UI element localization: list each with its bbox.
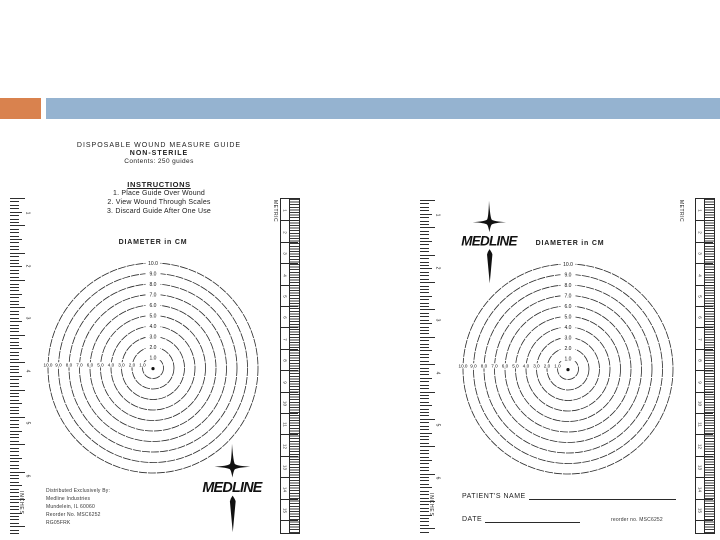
ruler-tick bbox=[420, 463, 429, 464]
distributor-line: Mundelein, IL 60060 bbox=[46, 503, 110, 511]
axis-label: 4.0 bbox=[523, 364, 530, 369]
ruler-tick bbox=[10, 530, 19, 531]
cm-tick bbox=[281, 349, 298, 350]
ruler-tick bbox=[420, 443, 429, 444]
ruler-tick bbox=[10, 393, 19, 394]
ruler-tick bbox=[10, 482, 19, 483]
inch-number: 1 bbox=[24, 212, 30, 215]
cm-tick bbox=[281, 306, 298, 307]
distributor-line: Medline Industries bbox=[46, 495, 110, 503]
ruler-tick bbox=[420, 415, 429, 416]
presentation-slide: DISPOSABLE WOUND MEASURE GUIDE NON-STERI… bbox=[0, 0, 720, 540]
ruler-tick bbox=[420, 388, 429, 389]
ruler-tick bbox=[10, 526, 25, 527]
ruler-tick bbox=[420, 378, 432, 379]
ruler-tick bbox=[10, 417, 25, 418]
ruler-tick bbox=[420, 357, 429, 358]
axis-label: 2.0 bbox=[129, 363, 136, 368]
axis-label: 8.0 bbox=[66, 363, 73, 368]
axis-label: 6.0 bbox=[502, 364, 509, 369]
ruler-tick bbox=[10, 280, 25, 281]
cm-number: 8 bbox=[283, 357, 288, 365]
inch-number: 4 bbox=[24, 369, 30, 372]
ruler-tick bbox=[10, 249, 19, 250]
ruler-tick bbox=[420, 217, 429, 218]
ruler-tick bbox=[420, 392, 435, 393]
instructions-heading: INSTRUCTIONS bbox=[28, 180, 290, 189]
cm-number: 5 bbox=[698, 293, 703, 301]
ruler-tick bbox=[420, 258, 429, 259]
ruler-tick bbox=[10, 492, 19, 493]
cm-tick bbox=[281, 499, 298, 500]
ruler-tick bbox=[420, 429, 429, 430]
inches-ruler-label: INCHES bbox=[428, 493, 434, 517]
ruler-tick bbox=[10, 379, 19, 380]
ring-label: 2.0 bbox=[150, 345, 157, 351]
ruler-tick bbox=[10, 396, 19, 397]
ruler-tick bbox=[10, 304, 19, 305]
ring-label: 10.0 bbox=[148, 261, 158, 267]
ruler-tick bbox=[10, 215, 19, 216]
cm-number: 15 bbox=[698, 507, 703, 515]
ruler-tick bbox=[420, 457, 429, 458]
ruler-tick bbox=[10, 270, 19, 271]
ruler-tick bbox=[10, 321, 22, 322]
inches-ruler: INCHES 123456 bbox=[420, 200, 446, 535]
inch-number: 3 bbox=[434, 319, 440, 322]
ruler-tick bbox=[10, 229, 19, 230]
ruler-tick bbox=[10, 427, 19, 428]
ruler-tick bbox=[10, 342, 19, 343]
ruler-tick bbox=[10, 369, 19, 370]
ruler-tick bbox=[420, 467, 429, 468]
cm-number: 4 bbox=[283, 271, 288, 279]
cm-tick bbox=[696, 349, 713, 350]
cm-number: 1 bbox=[283, 207, 288, 215]
ruler-tick bbox=[420, 265, 429, 266]
ruler-tick bbox=[420, 412, 429, 413]
distributor-info: Distributed Exclusively By: Medline Indu… bbox=[46, 487, 110, 527]
ruler-tick bbox=[420, 323, 432, 324]
ruler-tick bbox=[420, 477, 429, 478]
ruler-tick bbox=[420, 371, 429, 372]
ruler-tick bbox=[10, 383, 19, 384]
inch-number: 2 bbox=[24, 264, 30, 267]
ruler-tick bbox=[420, 210, 429, 211]
ruler-tick bbox=[420, 426, 429, 427]
ruler-tick bbox=[420, 347, 429, 348]
inch-number: 1 bbox=[434, 214, 440, 217]
axis-label: 6.0 bbox=[87, 363, 94, 368]
ruler-tick bbox=[420, 470, 429, 471]
ruler-tick bbox=[10, 455, 19, 456]
ruler-tick bbox=[10, 294, 22, 295]
cm-tick bbox=[281, 285, 298, 286]
ruler-tick bbox=[10, 232, 19, 233]
ruler-tick bbox=[420, 474, 435, 475]
ruler-tick bbox=[420, 521, 429, 522]
ruler-tick bbox=[10, 376, 22, 377]
ruler-tick bbox=[10, 301, 19, 302]
ruler-tick bbox=[420, 436, 429, 437]
ring-label: 8.0 bbox=[565, 283, 572, 289]
ring-label: 1.0 bbox=[565, 356, 572, 362]
wound-guide-back: INCHES 123456 MEDLINE DIAMETER in CM 10.… bbox=[418, 196, 718, 538]
ruler-tick bbox=[420, 494, 429, 495]
ruler-tick bbox=[10, 284, 19, 285]
ruler-tick bbox=[10, 201, 19, 202]
ruler-tick bbox=[10, 448, 19, 449]
ruler-tick bbox=[10, 328, 19, 329]
ruler-tick bbox=[10, 205, 19, 206]
ruler-tick bbox=[10, 413, 19, 414]
ruler-tick bbox=[420, 320, 429, 321]
cm-number: 4 bbox=[698, 271, 703, 279]
ruler-tick bbox=[420, 487, 432, 488]
ruler-tick bbox=[420, 275, 429, 276]
cm-number: 7 bbox=[283, 335, 288, 343]
ring-label: 6.0 bbox=[150, 303, 157, 309]
ruler-tick bbox=[420, 200, 435, 201]
metric-ruler: 123456789101112131415 bbox=[280, 198, 300, 534]
instruction-step-2: 2. View Wound Through Scales bbox=[28, 198, 290, 207]
cm-number: 3 bbox=[283, 250, 288, 258]
ruler-tick bbox=[10, 263, 19, 264]
ruler-tick bbox=[10, 403, 22, 404]
ruler-tick bbox=[420, 518, 429, 519]
ruler-tick bbox=[10, 198, 25, 199]
ruler-tick bbox=[420, 364, 435, 365]
cm-tick bbox=[281, 434, 298, 435]
distributor-line: RG05FRK bbox=[46, 519, 110, 527]
ruler-tick bbox=[10, 331, 19, 332]
ruler-tick bbox=[10, 345, 19, 346]
cm-number: 7 bbox=[698, 335, 703, 343]
ruler-tick bbox=[420, 224, 429, 225]
cm-tick bbox=[696, 499, 713, 500]
ruler-tick bbox=[10, 287, 19, 288]
distributor-line: Reorder No. MSC6252 bbox=[46, 511, 110, 519]
ruler-tick bbox=[10, 212, 22, 213]
cm-number: 9 bbox=[283, 378, 288, 386]
ring-label: 9.0 bbox=[565, 272, 572, 278]
medline-logo: MEDLINE bbox=[186, 440, 278, 536]
ring-label: 4.0 bbox=[565, 325, 572, 331]
cm-number: 5 bbox=[283, 293, 288, 301]
ruler-tick bbox=[420, 398, 429, 399]
cm-number: 11 bbox=[283, 421, 288, 429]
ruler-tick bbox=[420, 306, 429, 307]
ruler-tick bbox=[420, 515, 432, 516]
logo-star-tail-icon bbox=[230, 496, 236, 532]
ruler-tick bbox=[420, 528, 435, 529]
ruler-tick bbox=[10, 499, 25, 500]
cm-tick bbox=[281, 327, 298, 328]
ruler-tick bbox=[10, 441, 19, 442]
ruler-tick bbox=[420, 316, 429, 317]
inch-number: 4 bbox=[434, 371, 440, 374]
patient-name-field: PATIENT'S NAME bbox=[462, 491, 676, 500]
ruler-tick bbox=[10, 509, 19, 510]
ruler-tick bbox=[420, 248, 429, 249]
cm-number: 8 bbox=[698, 357, 703, 365]
ruler-tick bbox=[420, 303, 429, 304]
ruler-tick bbox=[420, 374, 429, 375]
cm-tick bbox=[281, 392, 298, 393]
ruler-tick bbox=[10, 372, 19, 373]
ruler-tick bbox=[420, 484, 429, 485]
cm-number: 12 bbox=[698, 442, 703, 450]
ruler-tick bbox=[10, 325, 19, 326]
axis-label: 2.0 bbox=[544, 364, 551, 369]
ruler-tick bbox=[10, 208, 19, 209]
axis-label: 10.0 bbox=[44, 363, 53, 368]
cm-number: 15 bbox=[283, 507, 288, 515]
axis-label: 9.0 bbox=[470, 364, 477, 369]
ruler-tick bbox=[10, 485, 22, 486]
ruler-tick bbox=[10, 355, 19, 356]
ruler-tick bbox=[420, 453, 429, 454]
ruler-tick bbox=[420, 214, 432, 215]
ruler-tick bbox=[10, 260, 19, 261]
ruler-tick bbox=[420, 221, 429, 222]
ruler-tick bbox=[420, 450, 429, 451]
cm-tick bbox=[696, 327, 713, 328]
cm-number: 13 bbox=[698, 464, 703, 472]
date-label: DATE bbox=[462, 516, 482, 523]
metric-ruler-label: METRIC bbox=[678, 200, 684, 222]
ruler-tick bbox=[420, 405, 432, 406]
ruler-tick bbox=[420, 409, 429, 410]
cm-tick bbox=[696, 263, 713, 264]
cm-tick bbox=[281, 220, 298, 221]
ruler-tick bbox=[10, 246, 19, 247]
ruler-tick bbox=[10, 461, 19, 462]
accent-bar-blue bbox=[46, 98, 720, 119]
ring-label: 7.0 bbox=[565, 293, 572, 299]
ruler-tick bbox=[420, 337, 435, 338]
ruler-tick bbox=[10, 451, 19, 452]
ruler-tick bbox=[10, 390, 25, 391]
instruction-step-3: 3. Discard Guide After One Use bbox=[28, 207, 290, 216]
ruler-tick bbox=[10, 348, 22, 349]
ruler-tick bbox=[10, 277, 19, 278]
cm-tick bbox=[696, 392, 713, 393]
inch-number: 5 bbox=[24, 422, 30, 425]
cm-tick bbox=[696, 220, 713, 221]
ruler-tick bbox=[420, 234, 429, 235]
ruler-tick bbox=[420, 395, 429, 396]
metric-ruler: 123456789101112131415 bbox=[695, 198, 715, 534]
ruler-tick bbox=[420, 251, 429, 252]
diameter-diagram-title: DIAMETER in CM bbox=[73, 239, 233, 246]
ruler-tick bbox=[10, 444, 25, 445]
ruler-tick bbox=[10, 386, 19, 387]
ruler-tick bbox=[10, 256, 19, 257]
ruler-tick bbox=[420, 299, 429, 300]
ruler-tick bbox=[420, 385, 429, 386]
ruler-tick bbox=[420, 333, 429, 334]
ruler-tick bbox=[420, 511, 429, 512]
ruler-tick bbox=[10, 290, 19, 291]
ring-label: 3.0 bbox=[150, 334, 157, 340]
patient-name-blank bbox=[529, 491, 676, 500]
ruler-tick bbox=[10, 242, 19, 243]
axis-label: 8.0 bbox=[481, 364, 488, 369]
cm-number: 14 bbox=[698, 485, 703, 493]
ruler-tick bbox=[420, 340, 429, 341]
ruler-tick bbox=[420, 501, 435, 502]
inches-ruler: INCHES 123456 bbox=[10, 198, 36, 536]
metric-ruler-label: METRIC bbox=[272, 200, 278, 222]
ruler-tick bbox=[420, 327, 429, 328]
axis-label: 3.0 bbox=[533, 364, 540, 369]
ruler-tick bbox=[10, 519, 19, 520]
cm-tick bbox=[696, 370, 713, 371]
ruler-tick bbox=[420, 272, 429, 273]
logo-wordmark: MEDLINE bbox=[202, 480, 262, 496]
metric-hatch bbox=[289, 199, 299, 533]
ruler-tick bbox=[10, 458, 22, 459]
cm-tick bbox=[696, 413, 713, 414]
inch-number: 6 bbox=[434, 477, 440, 480]
ruler-tick bbox=[420, 439, 429, 440]
ring-label: 5.0 bbox=[565, 314, 572, 320]
ruler-tick bbox=[420, 255, 435, 256]
center-dot bbox=[151, 367, 154, 370]
ruler-tick bbox=[10, 489, 19, 490]
cm-number: 10 bbox=[698, 400, 703, 408]
ruler-tick bbox=[420, 381, 429, 382]
axis-label: 3.0 bbox=[118, 363, 125, 368]
ruler-tick bbox=[10, 225, 25, 226]
ruler-tick bbox=[420, 292, 429, 293]
ruler-tick bbox=[10, 431, 22, 432]
ruler-tick bbox=[420, 262, 429, 263]
ruler-tick bbox=[10, 400, 19, 401]
ruler-tick bbox=[10, 239, 22, 240]
cm-tick bbox=[696, 285, 713, 286]
ruler-tick bbox=[10, 359, 19, 360]
ruler-tick bbox=[420, 203, 429, 204]
guide-header: DISPOSABLE WOUND MEASURE GUIDE NON-STERI… bbox=[28, 142, 290, 216]
ruler-tick bbox=[420, 498, 429, 499]
ruler-tick bbox=[420, 279, 429, 280]
inch-number: 6 bbox=[24, 475, 30, 478]
inch-number: 3 bbox=[24, 317, 30, 320]
ruler-tick bbox=[10, 478, 19, 479]
guide-sterility: NON-STERILE bbox=[28, 150, 290, 158]
ruler-tick bbox=[10, 236, 19, 237]
diameter-diagram: 10.010.09.09.08.08.07.07.06.06.05.05.04.… bbox=[453, 253, 683, 483]
cm-number: 12 bbox=[283, 442, 288, 450]
cm-tick bbox=[696, 434, 713, 435]
cm-number: 2 bbox=[698, 228, 703, 236]
ruler-tick bbox=[10, 219, 19, 220]
patient-name-label: PATIENT'S NAME bbox=[462, 493, 526, 500]
cm-tick bbox=[281, 263, 298, 264]
ruler-tick bbox=[10, 318, 19, 319]
date-blank bbox=[485, 514, 580, 523]
axis-label: 5.0 bbox=[512, 364, 519, 369]
ruler-tick bbox=[10, 437, 19, 438]
ring-label: 8.0 bbox=[150, 282, 157, 288]
cm-tick bbox=[696, 520, 713, 521]
ruler-tick bbox=[420, 491, 429, 492]
ruler-tick bbox=[420, 460, 432, 461]
ruler-tick bbox=[420, 525, 429, 526]
inch-number: 5 bbox=[434, 424, 440, 427]
ruler-tick bbox=[10, 533, 19, 534]
ruler-tick bbox=[420, 419, 435, 420]
cm-tick bbox=[281, 370, 298, 371]
cm-number: 11 bbox=[698, 421, 703, 429]
cm-number: 14 bbox=[283, 485, 288, 493]
ruler-tick bbox=[10, 297, 19, 298]
ruler-tick bbox=[10, 465, 19, 466]
ruler-tick bbox=[420, 207, 429, 208]
center-dot bbox=[566, 368, 569, 371]
ruler-tick bbox=[10, 407, 19, 408]
ruler-tick bbox=[10, 362, 25, 363]
cm-tick bbox=[281, 242, 298, 243]
ruler-tick bbox=[420, 238, 429, 239]
axis-label: 1.0 bbox=[554, 364, 561, 369]
diameter-diagram-title: DIAMETER in CM bbox=[490, 240, 650, 247]
instruction-step-1: 1. Place Guide Over Wound bbox=[28, 189, 290, 198]
wound-guide-front: DISPOSABLE WOUND MEASURE GUIDE NON-STERI… bbox=[8, 138, 310, 538]
date-field: DATE bbox=[462, 514, 580, 523]
ruler-tick bbox=[10, 424, 19, 425]
accent-bar-orange bbox=[0, 98, 41, 119]
axis-label: 7.0 bbox=[76, 363, 83, 368]
cm-tick bbox=[696, 242, 713, 243]
logo-star-icon bbox=[473, 201, 506, 232]
cm-number: 1 bbox=[698, 207, 703, 215]
cm-tick bbox=[696, 456, 713, 457]
ring-label: 7.0 bbox=[150, 292, 157, 298]
logo-star-icon bbox=[215, 444, 251, 478]
ruler-tick bbox=[420, 508, 429, 509]
ruler-tick bbox=[10, 338, 19, 339]
ruler-tick bbox=[420, 241, 432, 242]
cm-tick bbox=[281, 520, 298, 521]
axis-label: 10.0 bbox=[459, 364, 468, 369]
cm-number: 2 bbox=[283, 228, 288, 236]
ruler-tick bbox=[420, 289, 429, 290]
ruler-tick bbox=[10, 410, 19, 411]
ruler-tick bbox=[420, 268, 432, 269]
inch-number: 2 bbox=[434, 266, 440, 269]
ruler-tick bbox=[420, 354, 429, 355]
ruler-tick bbox=[420, 350, 432, 351]
ruler-tick bbox=[10, 335, 25, 336]
ruler-tick bbox=[420, 422, 429, 423]
ring-label: 3.0 bbox=[565, 335, 572, 341]
ruler-tick bbox=[420, 330, 429, 331]
cm-number: 6 bbox=[283, 314, 288, 322]
ring-label: 5.0 bbox=[150, 313, 157, 319]
guide-title: DISPOSABLE WOUND MEASURE GUIDE bbox=[28, 142, 290, 150]
axis-label: 1.0 bbox=[139, 363, 146, 368]
reorder-note: reorder no. MSC6252 bbox=[611, 517, 663, 523]
ruler-tick bbox=[420, 282, 435, 283]
ruler-tick bbox=[10, 496, 19, 497]
distributor-line: Distributed Exclusively By: bbox=[46, 487, 110, 495]
ring-label: 1.0 bbox=[150, 355, 157, 361]
ruler-tick bbox=[10, 420, 19, 421]
ruler-tick bbox=[10, 307, 25, 308]
